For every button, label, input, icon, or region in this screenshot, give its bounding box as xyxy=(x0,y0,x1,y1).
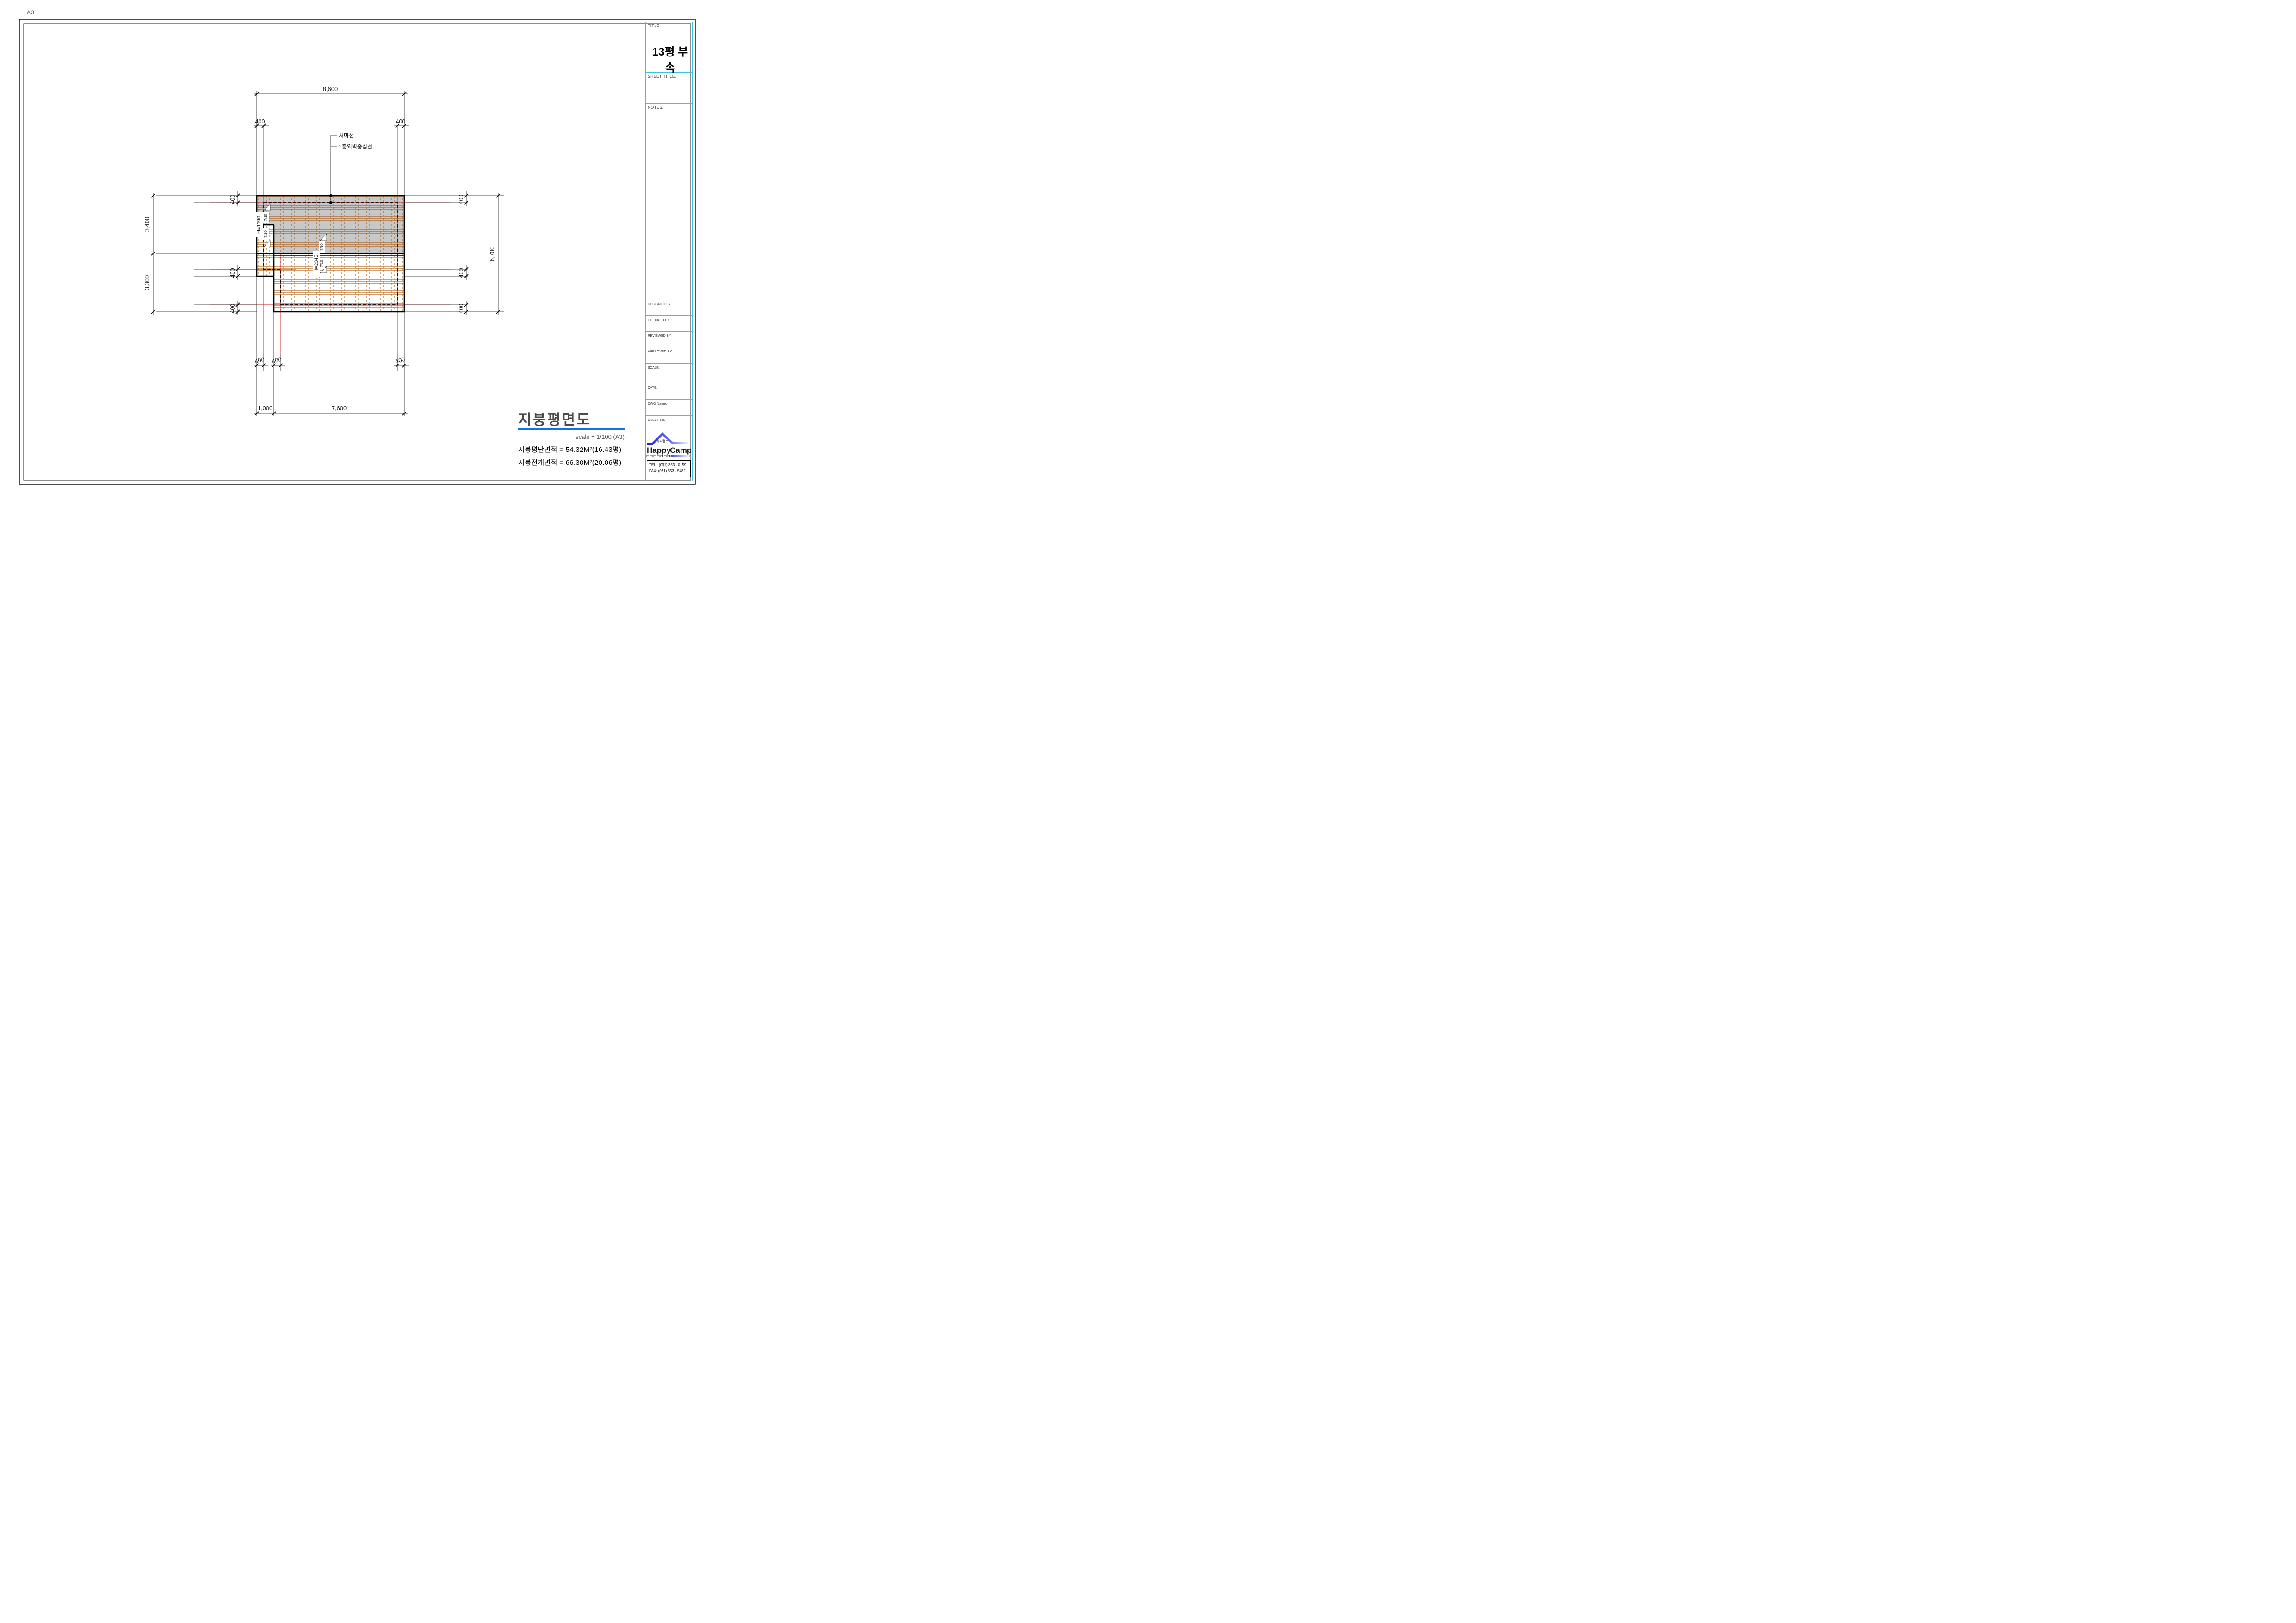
happy-camp-logo: 해피캠프 Happy Camp xyxy=(646,432,691,460)
title-label: TITLE. xyxy=(648,23,661,28)
checked-by-cell: CHECKED BY xyxy=(646,316,693,332)
notes-cell: NOTES. xyxy=(646,104,693,300)
dim-eave-left-mid: 400 xyxy=(229,268,236,278)
dim-eave-right-top: 400 xyxy=(458,195,464,204)
fax-text: FAX: (031) 353 - 5482 xyxy=(649,468,690,474)
label-slope-3: 7/10 xyxy=(320,243,324,251)
logo-name-green: Camp xyxy=(670,446,691,455)
dim-bottom-offset: 1,000 xyxy=(258,405,273,412)
project-title: 13평 부속 xyxy=(648,43,693,75)
drawing-title: 지붕평면도 xyxy=(518,408,591,429)
date-label: DATE. xyxy=(648,386,657,389)
upper-roof-fill xyxy=(257,196,404,253)
dwg-name-label: DWG Name. xyxy=(648,402,667,406)
label-slope-1: 7/10 xyxy=(264,214,268,221)
dim-eave-top-right: 400 xyxy=(396,118,406,125)
label-eave-line: 처마선 xyxy=(339,132,354,139)
scale-cell: SCALE. xyxy=(646,364,693,383)
dim-eave-bottom-right: 400 xyxy=(395,356,406,365)
dim-eave-left-top: 400 xyxy=(229,195,236,204)
leader-dot-centerline xyxy=(329,201,332,204)
sheet-no-cell: SHEET No. xyxy=(646,416,693,431)
drawing-sheet: A3 xyxy=(0,0,715,506)
sheet-title-label: SHEET TITLE. xyxy=(648,74,676,79)
logo-dashed-squares xyxy=(647,455,670,457)
dim-eave-top-left: 400 xyxy=(255,118,265,125)
logo-cell: 해피캠프 Happy Camp TEL : (031) 353 - 0159 F… xyxy=(646,431,693,481)
approved-by-label: APPROVED BY xyxy=(648,350,672,353)
reviewed-by-cell: REVIEWED BY xyxy=(646,332,693,347)
title-cell: TITLE. 13평 부속 xyxy=(646,22,693,73)
lower-roof-fill xyxy=(274,253,404,312)
notes-label: NOTES. xyxy=(648,105,664,110)
label-height-lower-roof: H=1190 xyxy=(256,216,262,234)
dim-left-upper: 3,400 xyxy=(143,217,150,232)
roof-developed-area-text: 지붕전개면적 = 66.30M²(20.06평) xyxy=(518,457,621,467)
logo-gradient-bar xyxy=(671,455,690,457)
dim-bottom-main: 7,600 xyxy=(332,405,347,412)
sheet-title-cell: SHEET TITLE. xyxy=(646,73,693,104)
tel-text: TEL : (031) 353 - 0159 xyxy=(649,462,690,468)
approved-by-cell: APPROVED BY xyxy=(646,347,693,364)
dim-eave-right-bottom: 400 xyxy=(458,304,464,314)
dim-eave-left-bottom: 400 xyxy=(229,304,236,314)
logo-korean-name: 해피캠프 xyxy=(656,439,668,443)
dim-eave-bottom-left2: 400 xyxy=(271,356,282,365)
dim-right: 6,700 xyxy=(489,247,495,262)
roof-plan-area-text: 지붕평단면적 = 54.32M²(16.43평) xyxy=(518,444,621,454)
leader-dot-eave xyxy=(329,194,332,197)
dim-eave-bottom-left1: 400 xyxy=(254,356,265,365)
sheet-no-label: SHEET No. xyxy=(648,419,665,422)
drawing-title-underline xyxy=(518,428,625,430)
scale-label: SCALE. xyxy=(648,366,660,370)
dim-top: 8,600 xyxy=(323,86,338,93)
checked-by-label: CHECKED BY xyxy=(648,319,670,322)
label-slope-4: 7/10 xyxy=(320,260,324,267)
reviewed-by-label: REVIEWED BY xyxy=(648,334,671,338)
logo-name-red: Happy xyxy=(647,446,671,455)
drawing-scale: scale = 1/100 (A3) xyxy=(527,433,625,440)
dim-eave-right-mid: 400 xyxy=(458,268,464,278)
leader-lines xyxy=(329,135,337,204)
label-height-upper-roof: H=2345 xyxy=(314,255,319,273)
designed-by-label: DESIGNED BY xyxy=(648,303,671,306)
title-block: TITLE. 13평 부속 SHEET TITLE. NOTES. DESIGN… xyxy=(645,22,693,481)
date-cell: DATE. xyxy=(646,383,693,400)
dim-left-lower: 3,300 xyxy=(143,275,150,290)
dwg-name-cell: DWG Name. xyxy=(646,400,693,416)
label-wall-centerline: 1층외벽중심선 xyxy=(339,143,372,150)
contact-box: TEL : (031) 353 - 0159 FAX: (031) 353 - … xyxy=(647,460,691,477)
designed-by-cell: DESIGNED BY xyxy=(646,300,693,316)
label-slope-2: 7/10 xyxy=(264,230,268,238)
